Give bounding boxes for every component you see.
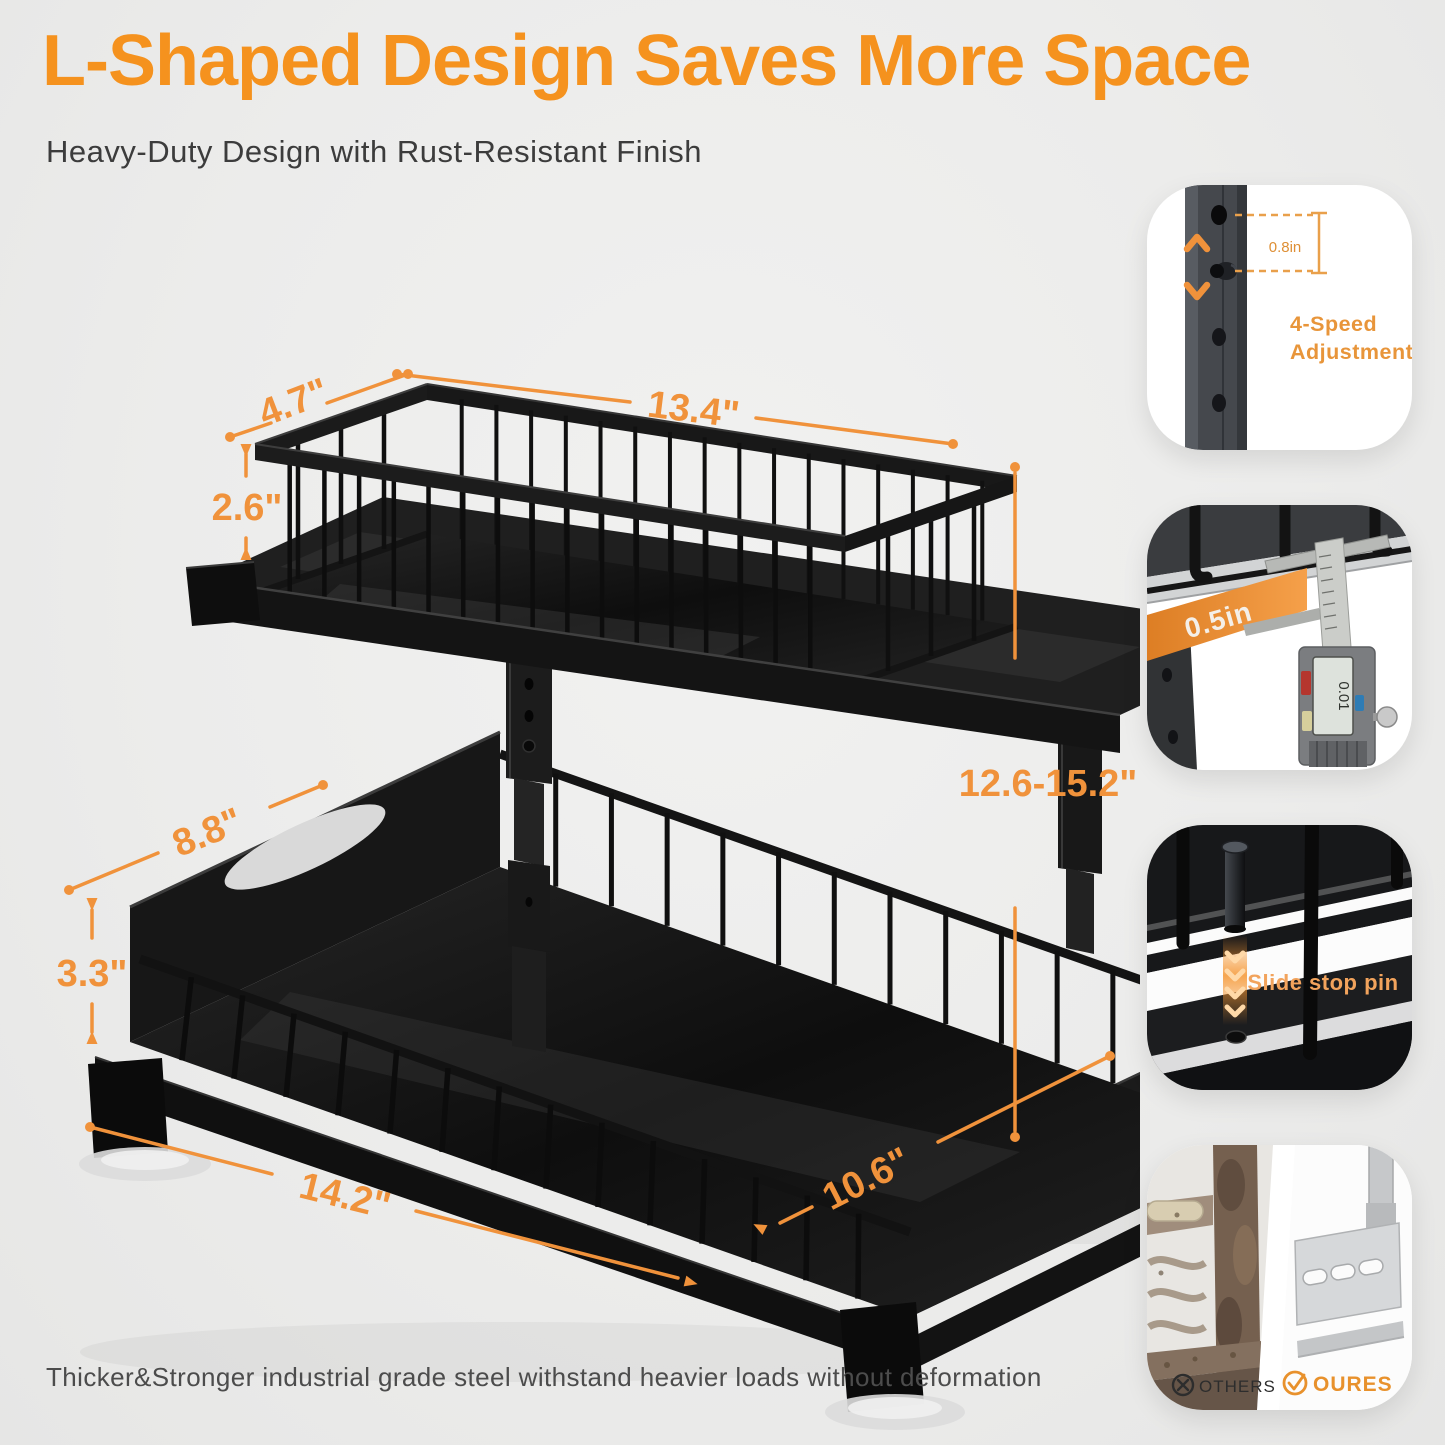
page-subtitle: Heavy-Duty Design with Rust-Resistant Fi… bbox=[46, 134, 702, 170]
glossy-rails-illustration bbox=[1147, 825, 1412, 1090]
adjustment-pin bbox=[1210, 262, 1237, 280]
middle-post bbox=[506, 632, 552, 1052]
page-title: L-Shaped Design Saves More Space bbox=[42, 20, 1402, 102]
svg-text:0.01: 0.01 bbox=[1335, 681, 1352, 710]
feature-card-adjustment: 0.8in 4-Speed Adjustment bbox=[1147, 185, 1412, 450]
svg-text:4-Speed: 4-Speed bbox=[1290, 312, 1377, 336]
stop-pin bbox=[1222, 841, 1248, 933]
spacing-measure: 0.8in bbox=[1235, 213, 1327, 273]
dim-drawer-height: 3.3" bbox=[57, 953, 128, 995]
screw-hole bbox=[1226, 1031, 1246, 1043]
dim-top-height: 2.6" bbox=[212, 487, 283, 529]
footer-caption: Thicker&Stronger industrial grade steel … bbox=[46, 1362, 1042, 1393]
dim-overall-height: 12.6-15.2" bbox=[959, 763, 1138, 805]
svg-text:Adjustment: Adjustment bbox=[1290, 340, 1412, 364]
adjustment-label: 4-Speed Adjustment bbox=[1290, 312, 1412, 364]
others-label: OTHERS bbox=[1199, 1377, 1276, 1396]
product-marketing-page: { "header": { "title": "L-Shaped Design … bbox=[0, 0, 1445, 1445]
adjustment-post-illustration bbox=[1185, 185, 1247, 450]
caliper-blue-button bbox=[1355, 695, 1364, 711]
feature-card-slide-stop: Slide stop pin bbox=[1147, 825, 1412, 1090]
feature-card-thickness: 0.5in 0.01 bbox=[1147, 505, 1412, 770]
adjustment-screw bbox=[523, 740, 535, 752]
oures-clean-rack bbox=[1279, 1145, 1412, 1410]
caliper-red-button bbox=[1301, 671, 1311, 695]
oures-label: OURES bbox=[1313, 1373, 1393, 1396]
product-diagram: 4.7" 13.4" 2.6" 8.8" 3.3" 14.2" 10.6 bbox=[40, 352, 1140, 1442]
slide-stop-label: Slide stop pin bbox=[1247, 970, 1398, 995]
pin-drop-glow bbox=[1223, 935, 1247, 1025]
spacing-measure-value: 0.8in bbox=[1269, 239, 1302, 256]
feature-card-comparison: OTHERS OURES bbox=[1147, 1145, 1412, 1410]
